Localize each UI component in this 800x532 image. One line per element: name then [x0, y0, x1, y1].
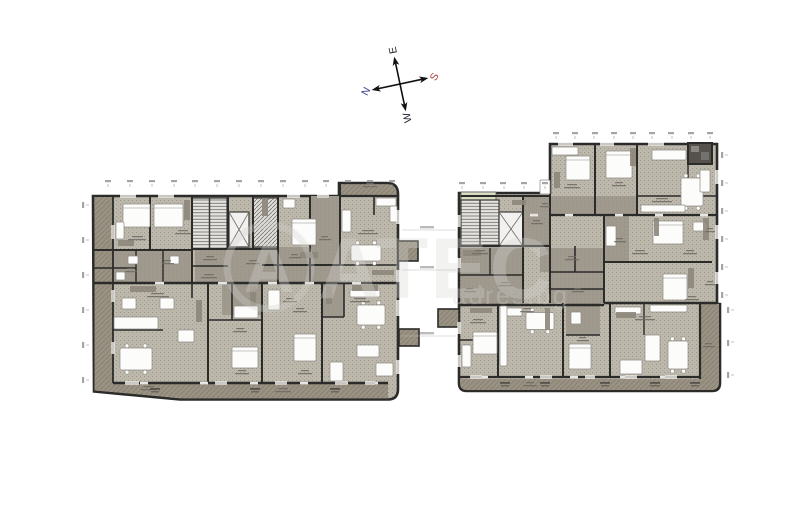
- svg-text:A: A: [244, 229, 295, 307]
- svg-text:adres.bg: adres.bg: [452, 280, 569, 310]
